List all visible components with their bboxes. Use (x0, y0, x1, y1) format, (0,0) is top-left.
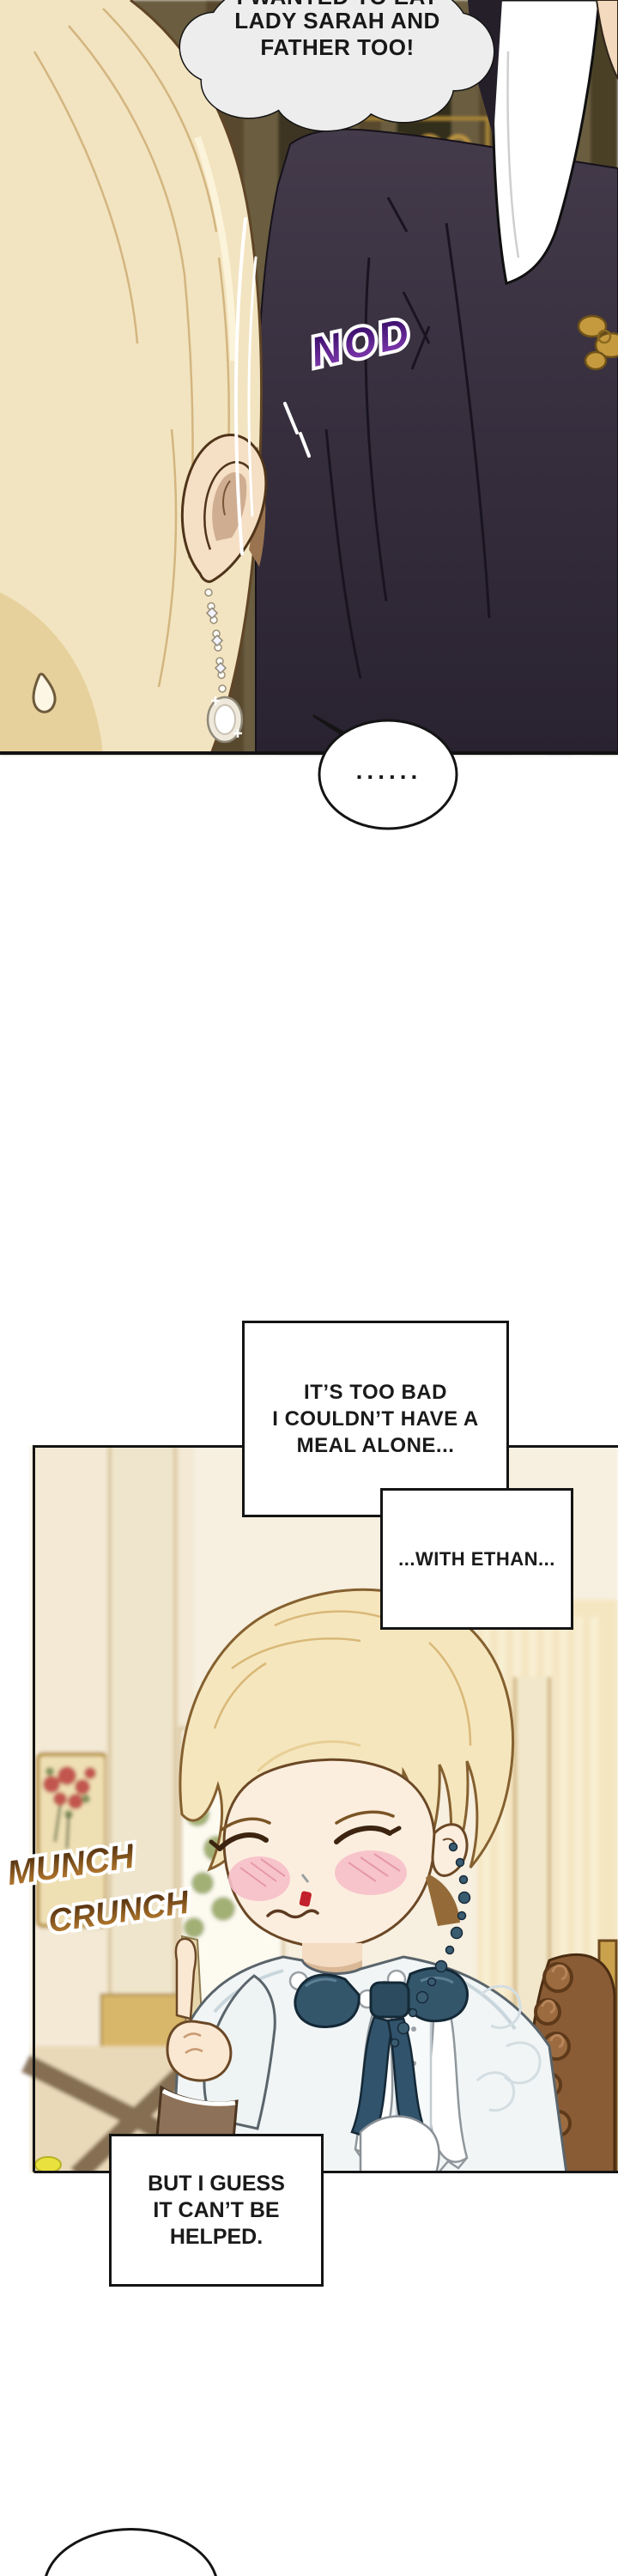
ellipsis-dots: ...... (324, 757, 454, 785)
monologue-box-2: ...WITH ETHAN... (380, 1488, 573, 1630)
box2-line: ...WITH ETHAN... (383, 1548, 571, 1571)
box3-line2: IT CAN’T BE (112, 2197, 321, 2224)
lemon (35, 2157, 61, 2172)
thought-bubble-line2: FATHER TOO! (204, 34, 470, 61)
panel1-bottom-border (0, 751, 618, 755)
thought-bubble-partial-line: I WANTED TO EAT WITH (204, 0, 470, 8)
fist (167, 2021, 231, 2081)
box3-line3: HELPED. (112, 2224, 321, 2251)
thought-bubble-line1: LADY SARAH AND (204, 8, 470, 34)
thought-bubble-text: I WANTED TO EAT WITH LADY SARAH AND FATH… (204, 0, 470, 61)
pillar (101, 1445, 185, 2055)
monologue-box-3: BUT I GUESS IT CAN’T BE HELPED. (109, 2134, 324, 2287)
bottom-partial-speech-bubble (43, 2528, 219, 2576)
comic-page: I WANTED TO EAT WITH LADY SARAH AND FATH… (0, 0, 618, 2576)
box1-line1: IT’S TOO BAD (245, 1379, 506, 1406)
box1-line3: MEAL ALONE... (245, 1432, 506, 1459)
box3-line1: BUT I GUESS (112, 2171, 321, 2197)
box1-line2: I COULDN’T HAVE A (245, 1406, 506, 1432)
panel1-artwork (0, 0, 618, 841)
child-face (224, 1759, 434, 1947)
